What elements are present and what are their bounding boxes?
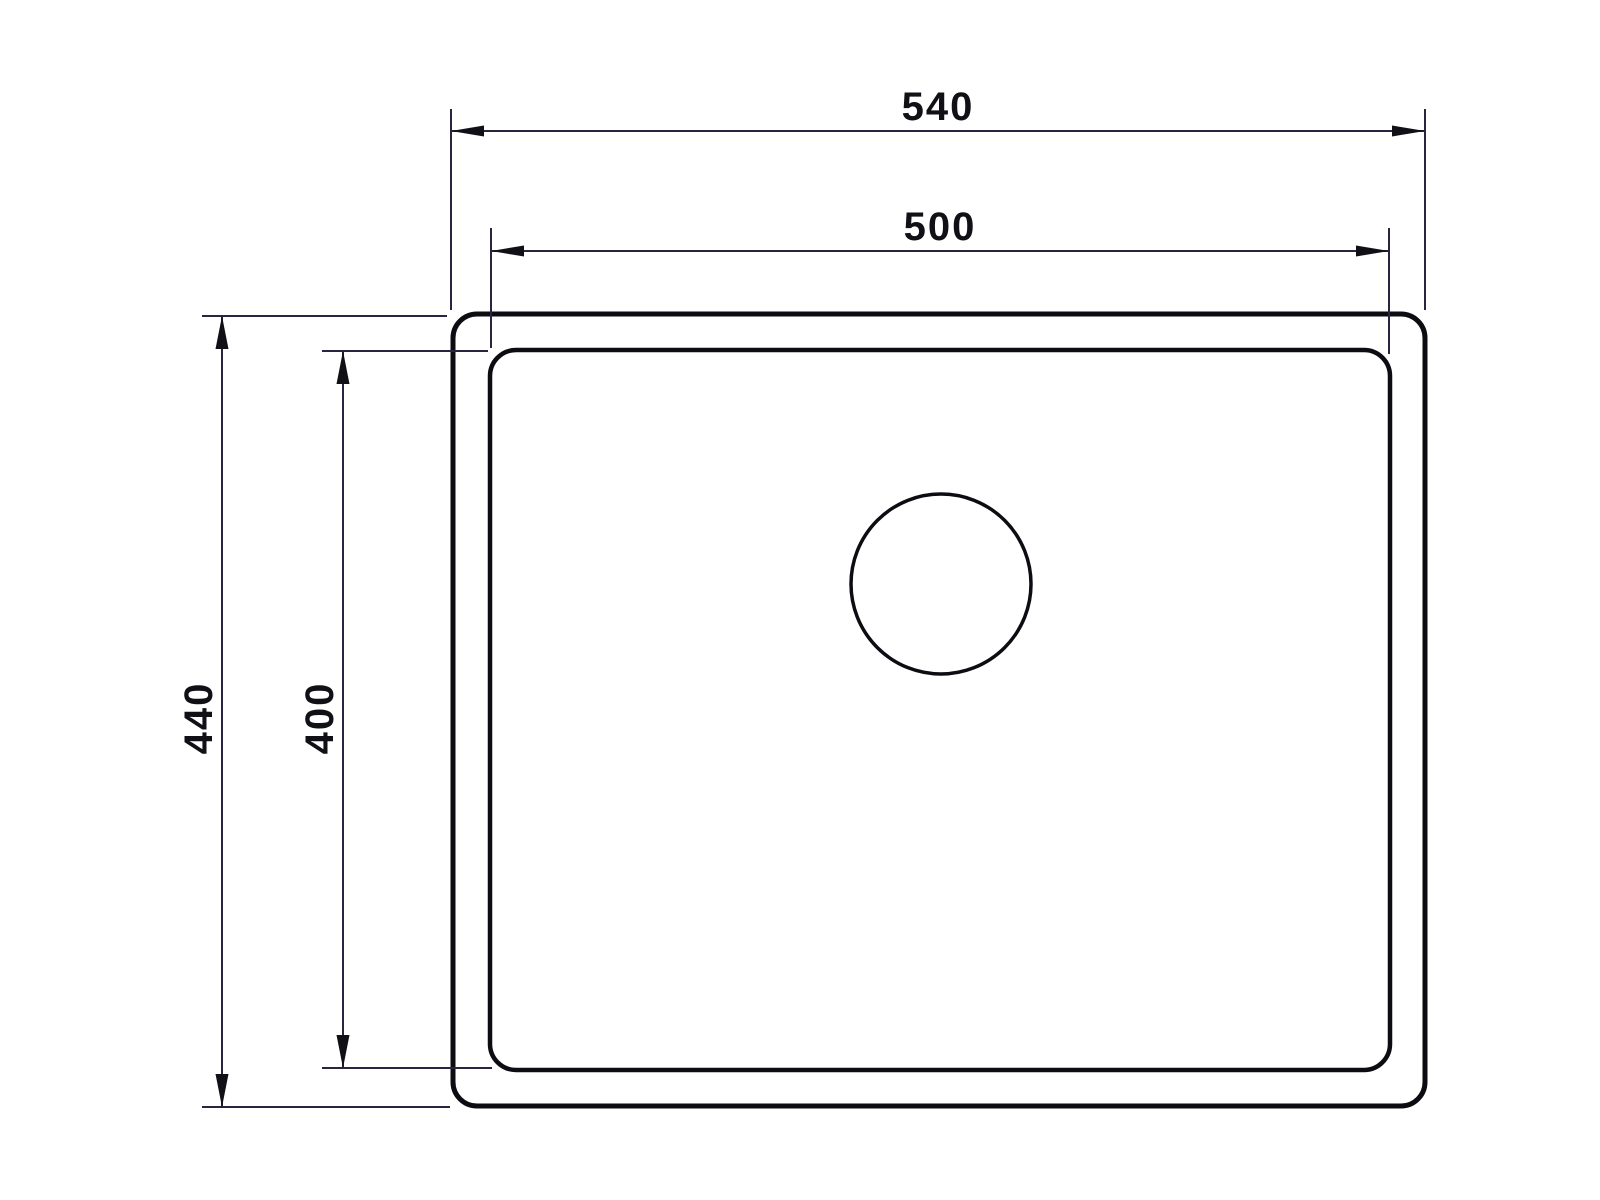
technical-drawing-canvas: 540 500 440 400 — [0, 0, 1600, 1200]
drain-hole-circle — [851, 494, 1031, 674]
arrowhead-right-icon — [1356, 246, 1389, 257]
arrowhead-right-icon — [1392, 126, 1425, 137]
sink-outer-outline — [453, 314, 1425, 1106]
dimension-inner-height: 400 — [298, 351, 492, 1068]
dimension-label-outer-height: 440 — [177, 682, 221, 755]
sink-bowl-outline — [490, 350, 1390, 1070]
arrowhead-bottom-icon — [337, 1035, 350, 1068]
dimension-inner-width: 500 — [491, 205, 1389, 354]
sink-dimension-drawing: 540 500 440 400 — [0, 0, 1600, 1200]
arrowhead-bottom-icon — [216, 1074, 229, 1107]
dimension-label-inner-height: 400 — [298, 682, 342, 755]
dimension-label-outer-width: 540 — [902, 85, 975, 129]
sink-outline-group — [453, 314, 1425, 1106]
arrowhead-top-icon — [337, 351, 350, 384]
dimension-label-inner-width: 500 — [904, 205, 977, 249]
dimension-outer-width: 540 — [451, 85, 1425, 310]
arrowhead-left-icon — [451, 126, 484, 137]
arrowhead-left-icon — [491, 246, 524, 257]
arrowhead-top-icon — [216, 316, 229, 349]
